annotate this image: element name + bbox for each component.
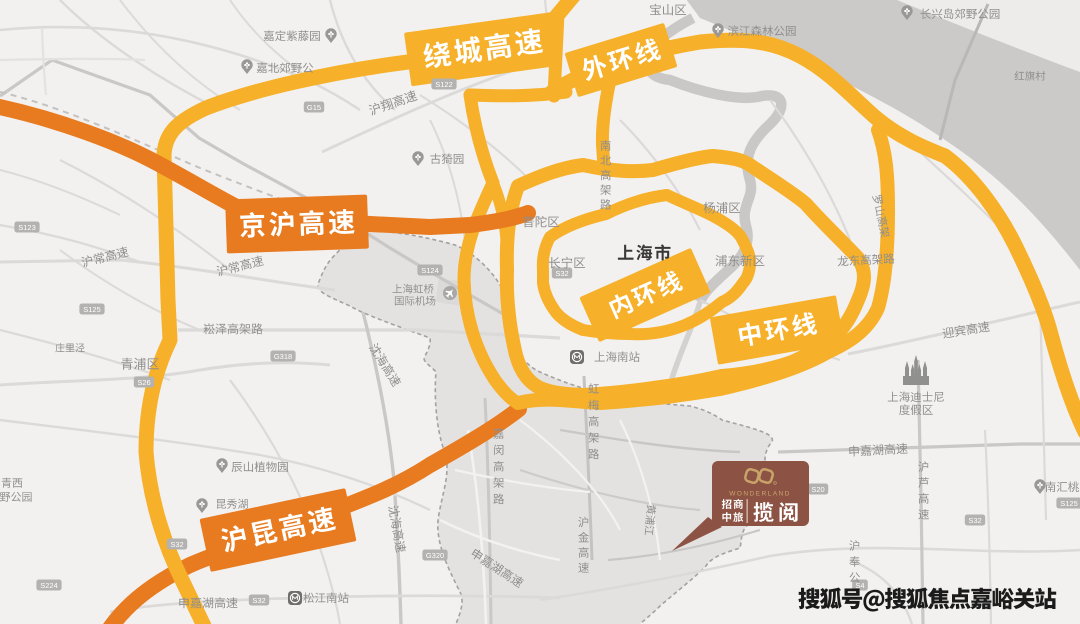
svg-text:S32: S32 [968, 516, 981, 525]
svg-text:S125: S125 [1060, 499, 1078, 508]
svg-text:S4: S4 [855, 581, 864, 590]
svg-text:S123: S123 [18, 223, 36, 232]
svg-text:S124: S124 [421, 266, 439, 275]
svg-text:G320: G320 [426, 551, 444, 560]
svg-text:S125: S125 [83, 305, 101, 314]
svg-text:S32: S32 [555, 269, 568, 278]
svg-text:G318: G318 [274, 352, 292, 361]
svg-text:G15: G15 [307, 103, 321, 112]
svg-text:S224: S224 [40, 581, 58, 590]
svg-text:WONDERLAND: WONDERLAND [729, 491, 791, 498]
svg-text:S32: S32 [170, 540, 183, 549]
svg-text:S20: S20 [811, 485, 824, 494]
svg-text:S26: S26 [137, 378, 150, 387]
svg-text:S122: S122 [435, 80, 453, 89]
svg-text:S32: S32 [252, 596, 265, 605]
